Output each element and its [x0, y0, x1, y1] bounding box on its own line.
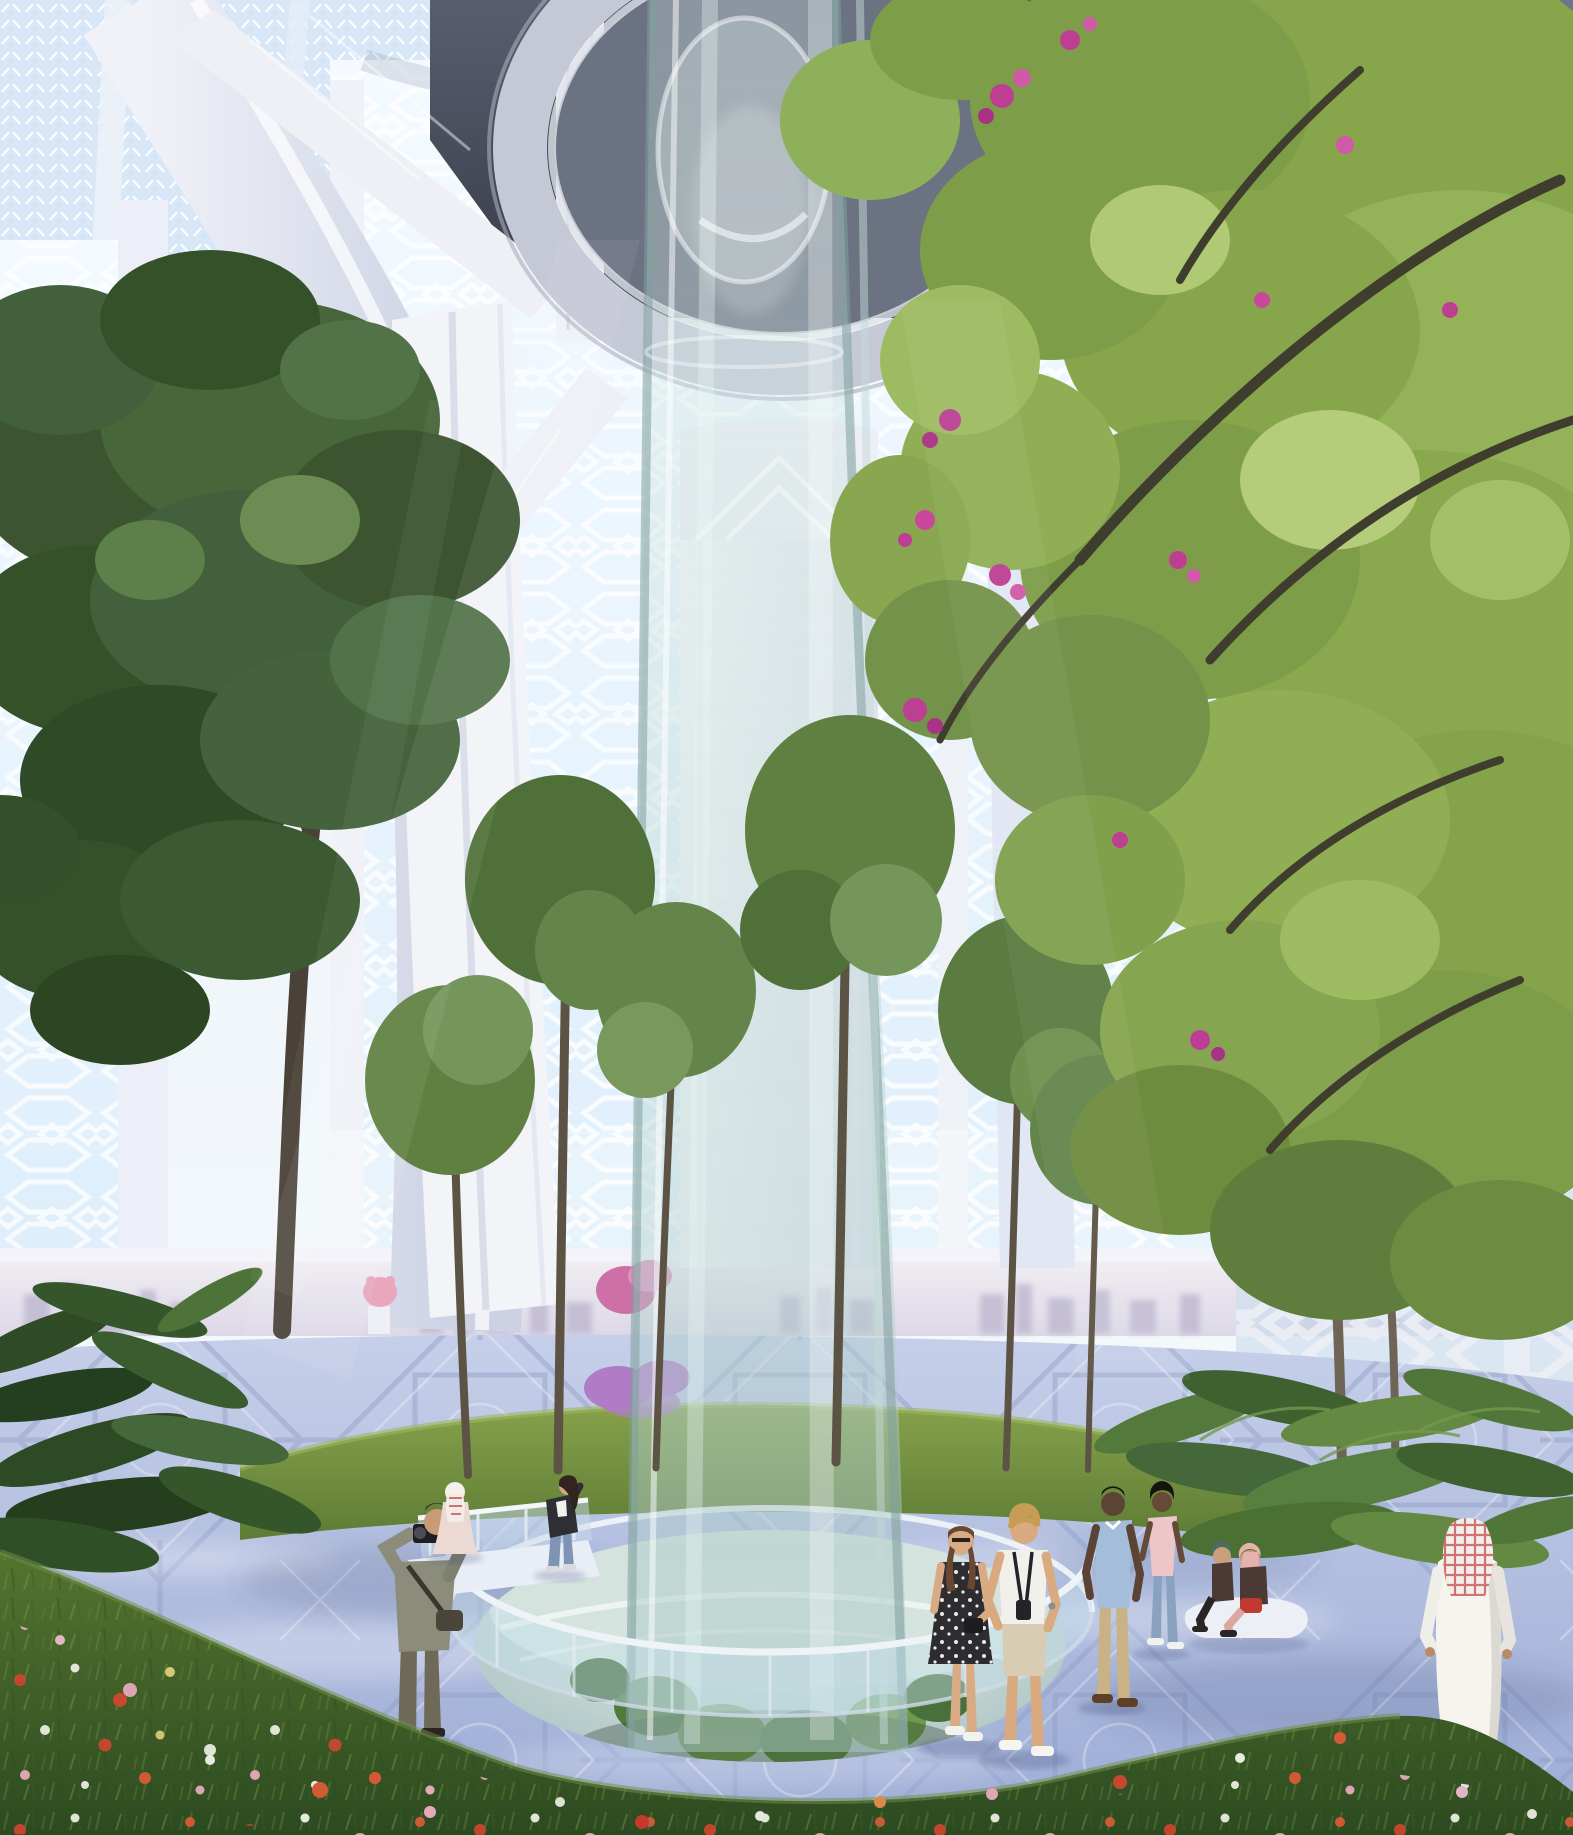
atrium-scene — [0, 0, 1573, 1835]
atrium-rendering — [0, 0, 1573, 1835]
